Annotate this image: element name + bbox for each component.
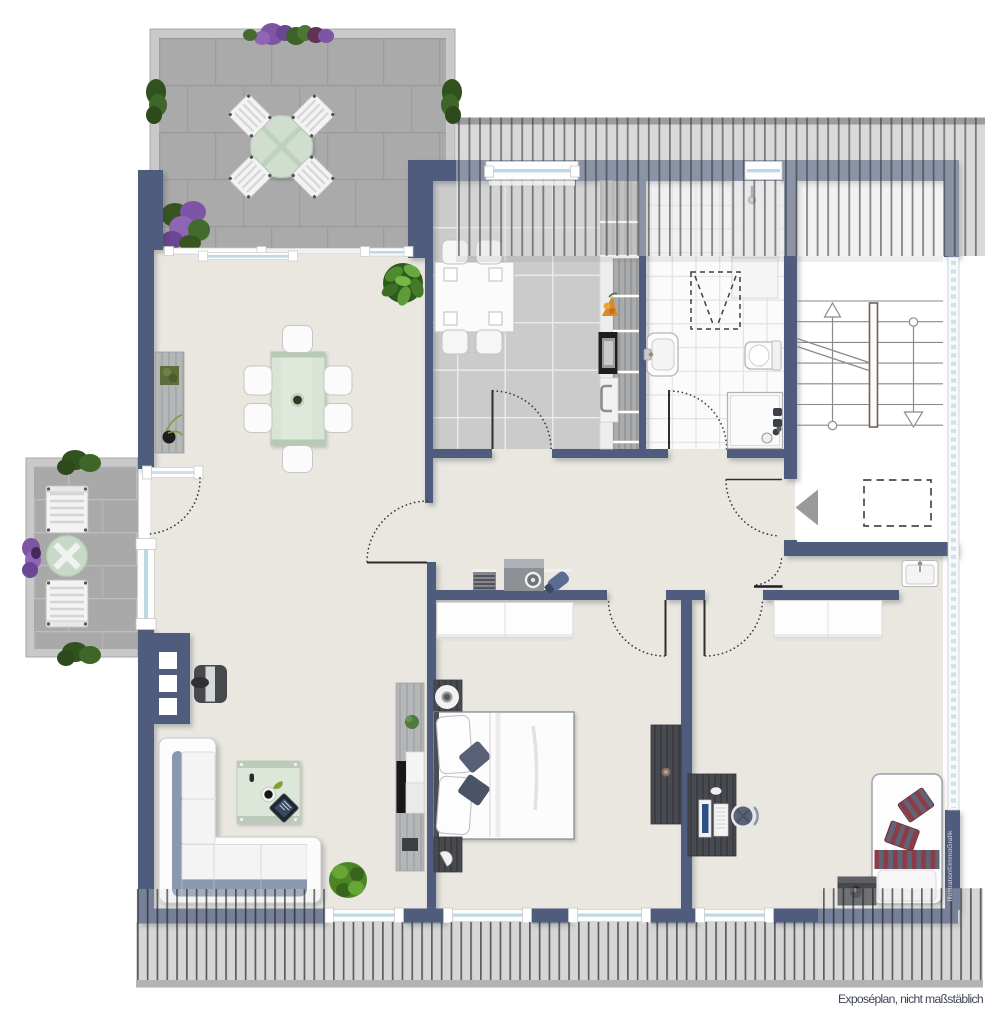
svg-text:Exposéplan, nicht maßstäblich: Exposéplan, nicht maßstäblich bbox=[838, 992, 983, 1006]
svg-text:Illustration©immoGrafik: Illustration©immoGrafik bbox=[946, 830, 954, 901]
